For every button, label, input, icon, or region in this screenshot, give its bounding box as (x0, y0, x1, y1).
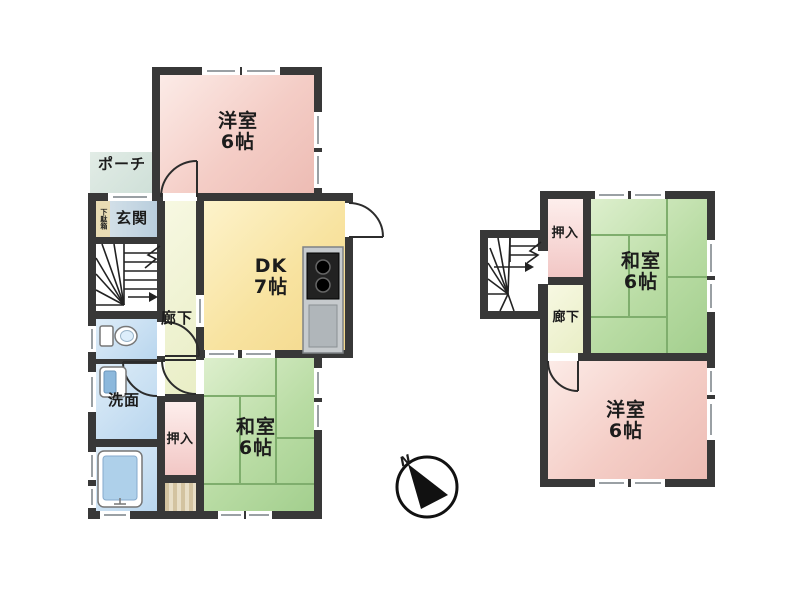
wall (96, 237, 157, 244)
wall (96, 311, 157, 319)
door-opening (548, 353, 578, 361)
wall (480, 311, 546, 319)
window (88, 452, 96, 480)
window (202, 67, 240, 75)
door-opening (157, 322, 165, 356)
label-japanese-1f: 和室6帖 (236, 417, 276, 459)
window (100, 511, 130, 519)
stairs-1f (96, 244, 157, 311)
room-corridor-1f (165, 201, 196, 394)
label-entrance-1f: 玄関 (116, 210, 148, 227)
entrance-door (108, 193, 152, 201)
window (314, 368, 322, 398)
window (631, 191, 665, 199)
wall (583, 191, 591, 361)
door-opening (163, 193, 197, 201)
label-shoe-cabinet-1f: 下駄箱 (99, 209, 107, 230)
wall (96, 359, 157, 364)
window (242, 67, 280, 75)
sliding-door (242, 350, 275, 358)
label-dk-1f: DK7帖 (254, 256, 288, 298)
label-closet-2f: 押入 (551, 227, 578, 241)
floor-plan: 洋室6帖 DK7帖 和室6帖 ポーチ 玄関 下駄箱 廊下 洗面 押入 押入 廊下… (0, 0, 800, 600)
window (707, 368, 715, 395)
room-toilet-1f (96, 319, 157, 359)
window (595, 191, 628, 199)
window (707, 280, 715, 312)
label-porch-1f: ポーチ (98, 156, 146, 173)
wall (96, 439, 157, 447)
label-corridor-2f: 廊下 (552, 311, 579, 325)
window (314, 152, 322, 188)
wall (157, 475, 204, 483)
door-opening (157, 362, 165, 396)
window (246, 511, 272, 519)
window (631, 479, 665, 487)
wall (480, 230, 546, 238)
wall (480, 230, 488, 319)
window (218, 511, 244, 519)
window (88, 486, 96, 508)
stairs-2f (488, 238, 538, 311)
window (88, 326, 96, 352)
window (314, 112, 322, 148)
wall (152, 67, 160, 201)
label-western-2f: 洋室6帖 (606, 400, 646, 442)
window (707, 399, 715, 440)
stair-opening (538, 251, 548, 284)
sliding-door (205, 350, 238, 358)
window (314, 402, 322, 430)
label-washroom-1f: 洗面 (108, 392, 140, 409)
label-western-1f: 洋室6帖 (218, 111, 258, 153)
wall (707, 191, 715, 487)
window (707, 240, 715, 276)
wall (157, 201, 165, 511)
label-corridor-1f: 廊下 (161, 310, 193, 327)
sliding-door (196, 295, 204, 327)
window (595, 479, 628, 487)
door-opening (345, 203, 353, 237)
label-japanese-2f: 和室6帖 (621, 251, 661, 293)
compass-north-label: N (398, 453, 413, 470)
window (88, 372, 96, 412)
wall (540, 191, 548, 487)
label-closet-1f: 押入 (166, 433, 193, 447)
door-opening (196, 360, 204, 394)
room-bathroom-1f (96, 447, 157, 511)
floor-strip-1f (165, 483, 196, 511)
